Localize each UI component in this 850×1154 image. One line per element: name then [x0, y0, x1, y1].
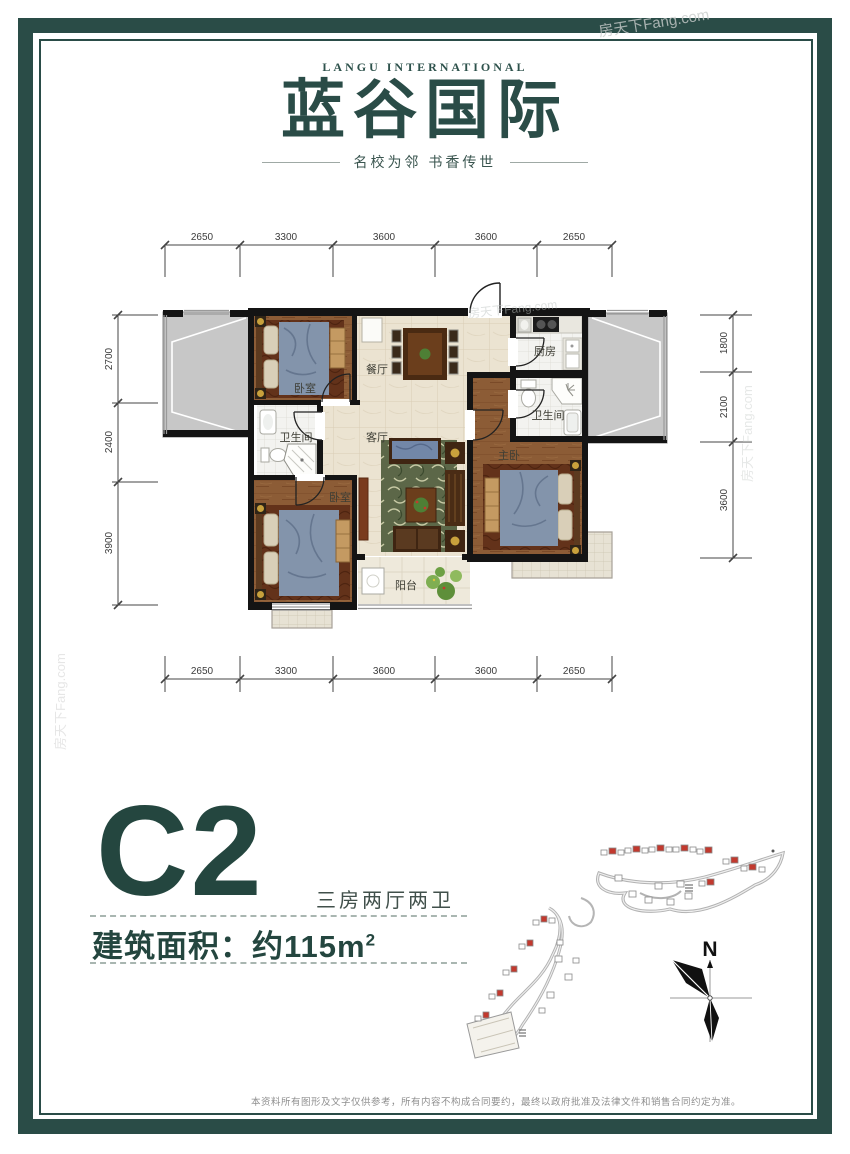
unit-area: 建筑面积：约115m2 — [92, 921, 376, 966]
tagline-text: 名校为邻 书香传世 — [354, 152, 497, 172]
dim-right-1: 1800 — [719, 331, 730, 354]
room-label-kitchen: 厨房 — [534, 345, 556, 358]
unit-area-text: 建筑面积：约115m — [92, 929, 366, 964]
room-label-balcony: 阳台 — [395, 578, 417, 592]
unit-area-sup: 2 — [366, 931, 376, 950]
floorplan-poster: LANGU INTERNATIONAL 蓝谷国际 名校为邻 书香传世 — [0, 0, 850, 1154]
room-label-bedroom-1: 卧室 — [294, 381, 316, 395]
tagline-rule-left — [262, 162, 340, 163]
terrace-left — [163, 310, 250, 437]
room-label-bathroom-2: 卫生间 — [280, 430, 313, 444]
terrace-right — [588, 310, 667, 443]
dim-bottom-1: 2650 — [191, 666, 214, 677]
dim-left-1: 2700 — [104, 347, 115, 370]
bedroom-2-furniture — [255, 503, 350, 600]
divider-dashed-bottom — [90, 962, 467, 964]
dim-bottom-2: 3300 — [275, 666, 298, 677]
dim-bottom-5: 2650 — [563, 666, 586, 677]
dim-bottom-3: 3600 — [373, 666, 396, 677]
corridor-floor — [322, 405, 357, 480]
room-label-living: 客厅 — [366, 430, 388, 444]
unit-layout: 三房两厅两卫 — [316, 884, 454, 913]
master-bedroom-furniture — [483, 460, 581, 556]
dim-top-2: 3300 — [275, 232, 298, 243]
dim-left-3: 3900 — [104, 531, 115, 554]
tagline-rule-right — [510, 162, 588, 163]
brand-name-en: LANGU INTERNATIONAL — [0, 60, 850, 75]
floor-plan: 2650 3300 3600 3600 2650 2650 3300 3600 … — [100, 220, 760, 700]
brand-logo: LANGU INTERNATIONAL 蓝谷国际 名校为邻 书香传世 — [0, 60, 850, 172]
divider-dashed-top — [90, 915, 467, 917]
dim-bottom-4: 3600 — [475, 666, 498, 677]
footer-disclaimer: 本资料所有图形及文字仅供参考，所有内容不构成合同要约，最终以政府批准及法律文件和… — [251, 1094, 796, 1108]
compass-arrowhead — [707, 960, 713, 968]
dim-left-2: 2400 — [104, 430, 115, 453]
compass: N — [656, 936, 771, 1056]
unit-code: C2 — [96, 788, 264, 916]
room-label-dining: 餐厅 — [366, 362, 388, 376]
dim-top-5: 2650 — [563, 232, 586, 243]
siteplan-sketch-lower — [453, 896, 603, 1066]
compass-north-label: N — [702, 938, 717, 961]
dim-right-2: 2100 — [719, 395, 730, 418]
dim-top-4: 3600 — [475, 232, 498, 243]
room-label-master: 主卧 — [498, 449, 520, 462]
room-label-bedroom-2: 卧室 — [329, 490, 351, 504]
terrace-bottom-left — [272, 610, 332, 628]
dim-top-3: 3600 — [373, 232, 396, 243]
siteplan-sketch-upper — [585, 833, 790, 923]
room-label-bathroom-master: 卫生间 — [532, 408, 565, 422]
dim-top-1: 2650 — [191, 232, 214, 243]
brand-tagline: 名校为邻 书香传世 — [0, 152, 850, 172]
dim-right-3: 3600 — [719, 488, 730, 511]
brand-name-cn: 蓝谷国际 — [0, 77, 850, 144]
